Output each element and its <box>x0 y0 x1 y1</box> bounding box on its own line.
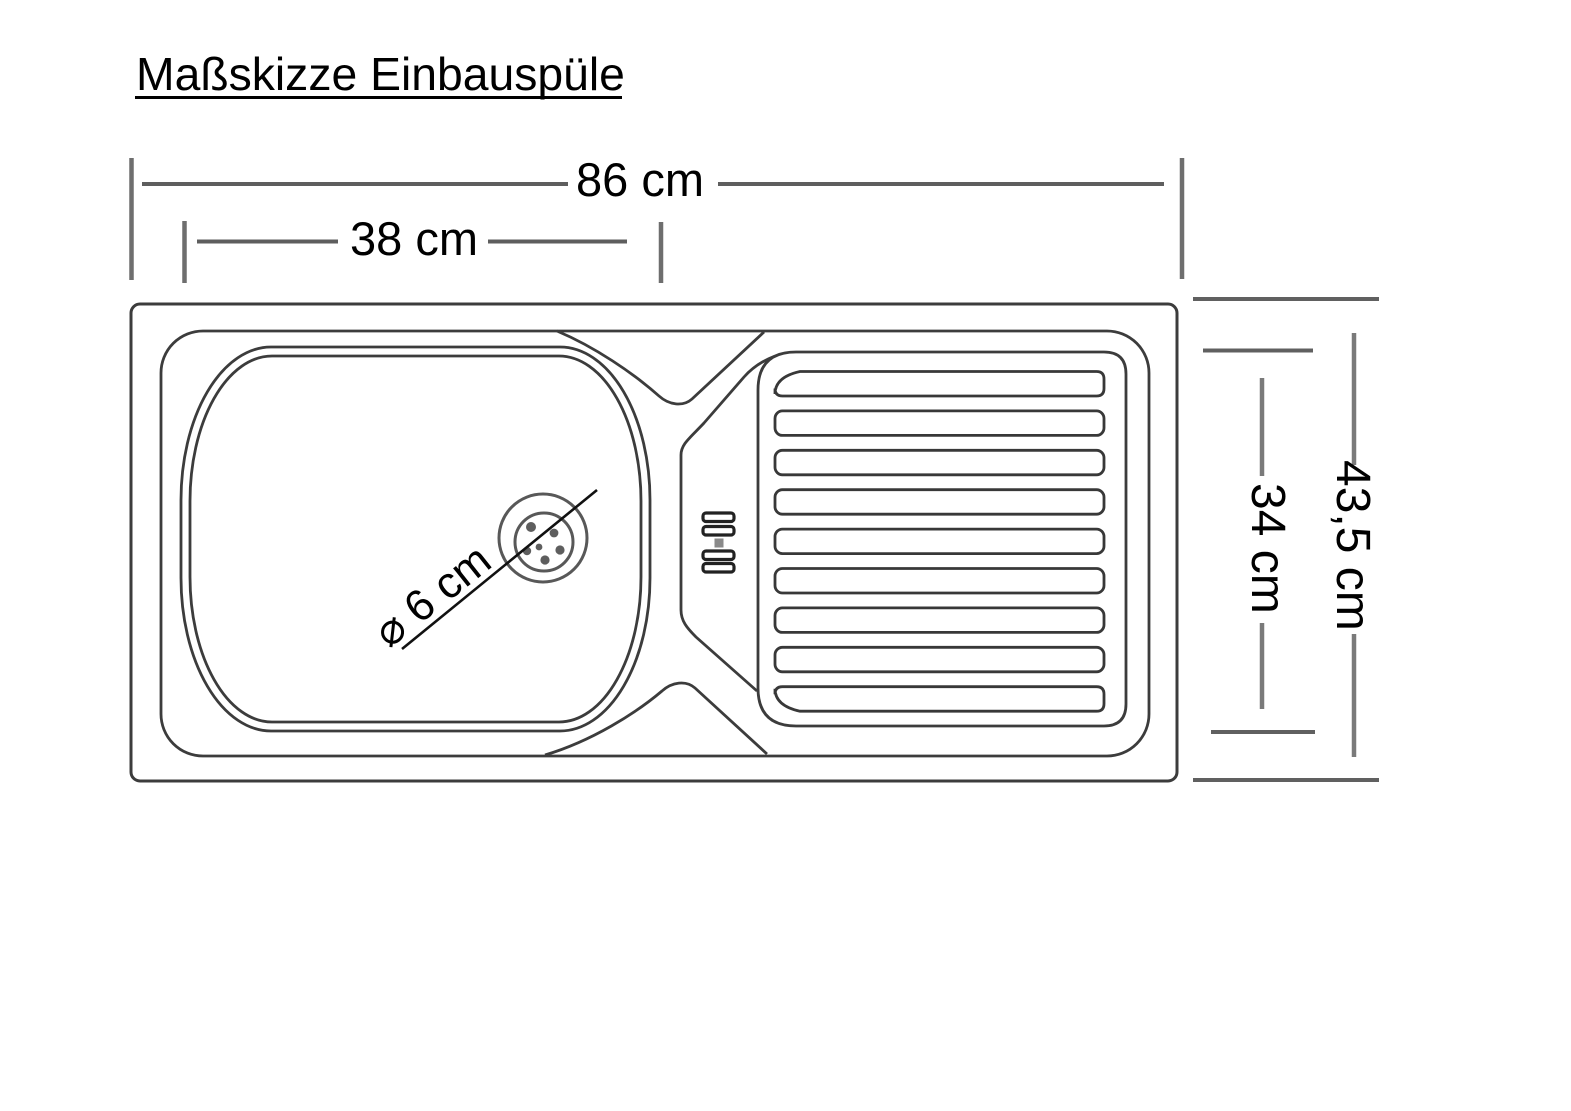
svg-text:38 cm: 38 cm <box>350 212 478 265</box>
svg-text:⌀ 6 cm: ⌀ 6 cm <box>365 535 500 657</box>
svg-text:43,5 cm: 43,5 cm <box>1326 460 1379 631</box>
svg-text:86 cm: 86 cm <box>576 153 704 206</box>
svg-text:Maßskizze Einbauspüle: Maßskizze Einbauspüle <box>136 48 625 100</box>
svg-text:34 cm: 34 cm <box>1241 483 1294 614</box>
